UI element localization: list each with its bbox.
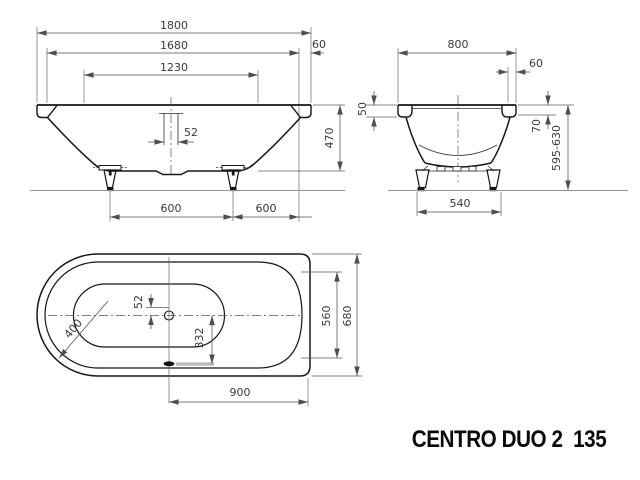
dim-feet-spacing-label: 600 [161, 202, 182, 215]
front-extension-lines [37, 27, 345, 222]
apron-marking [176, 362, 214, 365]
waste-marking [164, 361, 175, 366]
dim-rim-height-label: 50 [356, 102, 369, 116]
dim-overall-length-label: 1800 [160, 19, 188, 32]
dim-overflow-drop: 70 [530, 91, 548, 133]
front-tub-outline [37, 97, 311, 176]
end-tub-outline [398, 95, 516, 191]
dim-overflow-width-front-label: 52 [184, 126, 198, 139]
bathtub-dimension-drawing: 1800 1680 60 1230 52 470 600 [0, 0, 640, 480]
model-title: CENTRO DUO 2 135 [412, 426, 607, 453]
dim-feet-to-edge-label: 600 [256, 202, 277, 215]
dim-overflow-width-plan: 52 [132, 294, 169, 329]
dim-rim-overhang-end: 60 [496, 57, 543, 72]
front-elevation-view: 1800 1680 60 1230 52 470 600 [30, 19, 345, 222]
dim-corner-radius: 400 [59, 301, 108, 358]
dim-tub-depth: 470 [323, 105, 340, 171]
dim-basin-width: 560 [301, 272, 342, 358]
dim-feet-width-label: 540 [450, 197, 471, 210]
dim-overflow-width-plan-label: 52 [132, 295, 145, 309]
dim-drain-to-end: 900 [169, 378, 308, 406]
dim-basin-width-label: 560 [320, 306, 333, 327]
dim-drain-offset: 332 [193, 316, 212, 365]
dim-overall-width-plan-label: 680 [341, 306, 354, 327]
dim-drain-to-end-label: 900 [230, 386, 251, 399]
support-frame [422, 166, 494, 171]
dim-overall-width-end: 800 [398, 38, 516, 53]
dim-basin-length: 1230 [84, 61, 258, 75]
dim-rim-length: 1680 60 [47, 38, 326, 53]
dim-install-height: 595-630 [550, 105, 568, 190]
dim-overflow-drop-label: 70 [530, 119, 543, 133]
dim-feet-width: 540 [417, 197, 501, 212]
dim-tub-depth-label: 470 [323, 128, 336, 149]
dim-overall-length: 1800 [37, 19, 311, 33]
dim-rim-overhang-end-label: 60 [529, 57, 543, 70]
dim-install-height-label: 595-630 [550, 125, 563, 171]
end-elevation-view: 800 60 50 70 595-630 540 [356, 38, 628, 216]
dim-feet-spacing: 600 600 [110, 202, 312, 217]
dim-overflow-width-front: 52 [148, 126, 198, 142]
technical-drawing-page: 1800 1680 60 1230 52 470 600 [0, 0, 640, 480]
front-left-foot [93, 166, 127, 192]
end-left-foot [416, 170, 429, 191]
dim-overall-width-end-label: 800 [448, 38, 469, 51]
dim-rim-height: 50 [356, 91, 374, 131]
dim-rim-overhang-label: 60 [312, 38, 326, 51]
plan-view: 52 332 400 560 680 900 [37, 254, 362, 406]
dim-drain-offset-label: 332 [193, 328, 206, 349]
end-right-foot [487, 170, 500, 191]
dim-basin-length-label: 1230 [160, 61, 188, 74]
dim-rim-length-label: 1680 [160, 39, 188, 52]
